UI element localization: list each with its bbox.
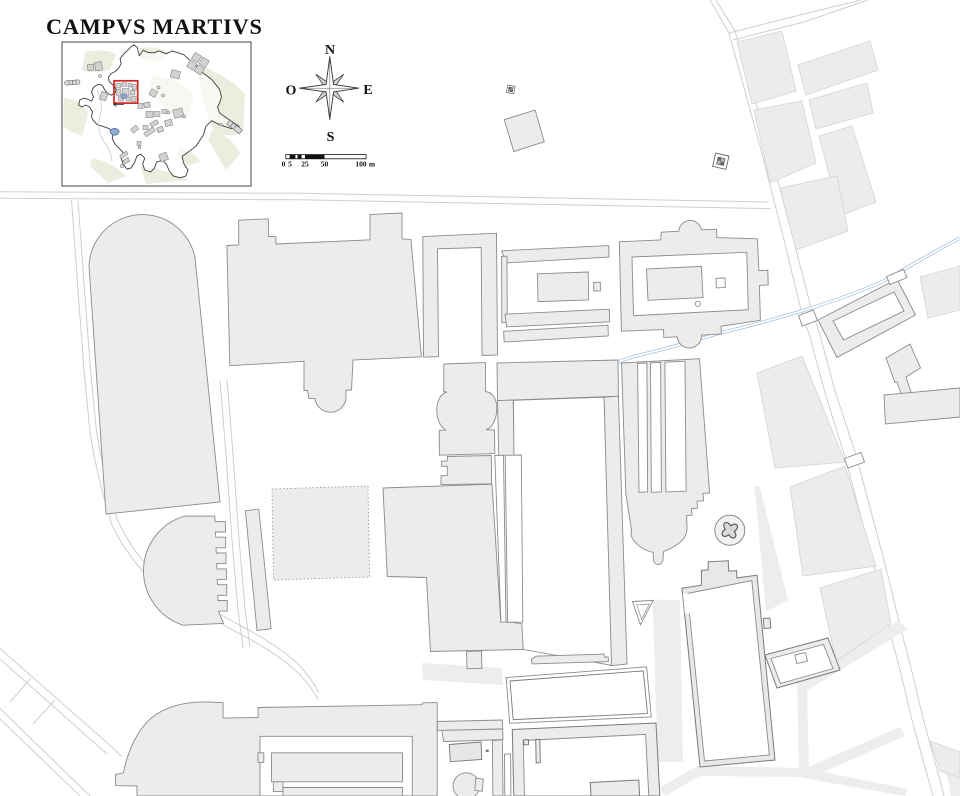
svg-text:O: O <box>286 84 297 99</box>
svg-text:5: 5 <box>288 160 292 169</box>
svg-text:25: 25 <box>301 160 309 169</box>
svg-text:m: m <box>369 160 376 169</box>
svg-text:100: 100 <box>355 160 367 169</box>
svg-text:E: E <box>363 83 372 98</box>
svg-text:0: 0 <box>282 160 286 169</box>
svg-text:50: 50 <box>321 160 329 169</box>
svg-text:S: S <box>327 130 335 145</box>
svg-text:N: N <box>325 43 335 58</box>
svg-text:CAMPVS MARTIVS: CAMPVS MARTIVS <box>46 14 263 39</box>
